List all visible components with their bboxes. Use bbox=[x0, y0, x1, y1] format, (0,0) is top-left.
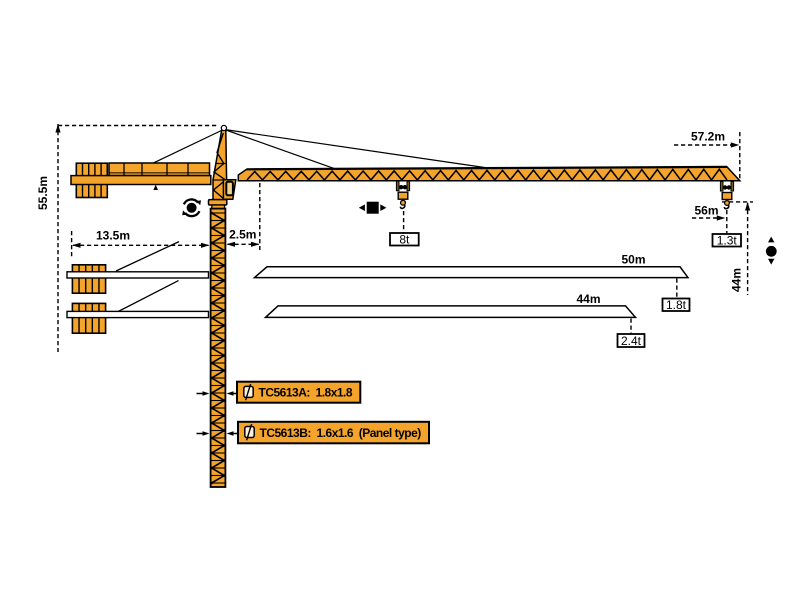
svg-text:50m: 50m bbox=[621, 253, 645, 267]
svg-text:44m: 44m bbox=[730, 268, 744, 292]
svg-text:1.3t: 1.3t bbox=[717, 234, 738, 248]
svg-text:8t: 8t bbox=[399, 233, 410, 247]
svg-text:2.4t: 2.4t bbox=[621, 334, 642, 348]
svg-text:55.5m: 55.5m bbox=[36, 176, 50, 210]
svg-text:57.2m: 57.2m bbox=[691, 130, 725, 144]
svg-text:2.5m: 2.5m bbox=[229, 227, 256, 241]
svg-text:1.8t: 1.8t bbox=[666, 298, 687, 312]
svg-text:TC5613B: 1.6x1.6 (Panel type: TC5613B: 1.6x1.6 (Panel type) bbox=[260, 426, 422, 440]
svg-text:13.5m: 13.5m bbox=[96, 228, 130, 242]
svg-text:TC5613A: 1.8x1.8: TC5613A: 1.8x1.8 bbox=[259, 386, 353, 400]
svg-text:44m: 44m bbox=[576, 292, 600, 306]
svg-text:56m: 56m bbox=[694, 204, 718, 218]
